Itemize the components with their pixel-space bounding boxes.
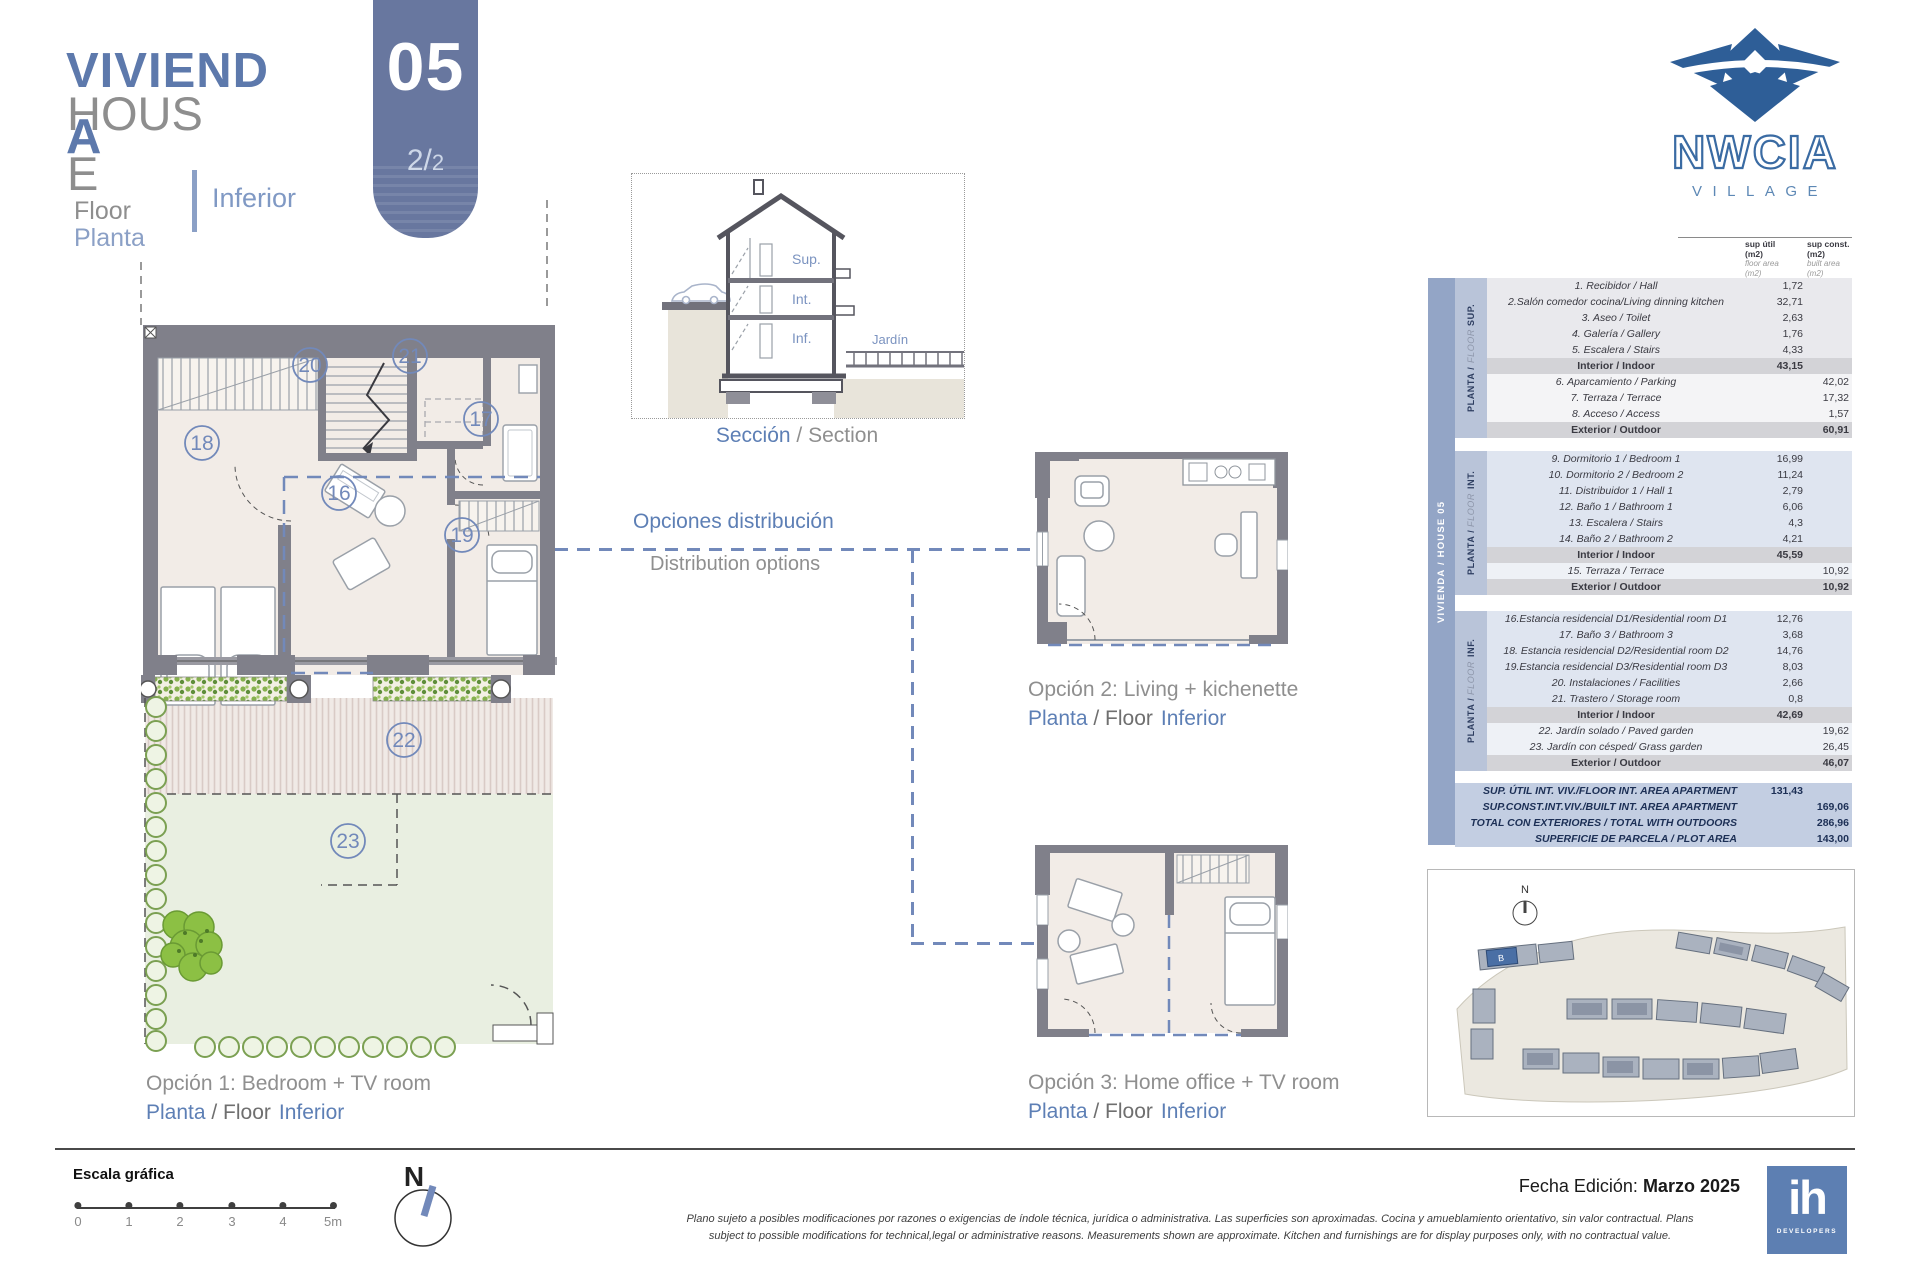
row-floor-area: 45,59 (1745, 547, 1807, 563)
row-label: 16.Estancia residencial D1/Residential r… (1487, 611, 1745, 627)
row-floor-area: 32,71 (1745, 294, 1807, 310)
row-built-area (1807, 691, 1852, 707)
disclaimer: Plano sujeto a posibles modificaciones p… (620, 1211, 1760, 1245)
option2-floor-plan (1035, 452, 1288, 650)
table-row: 16.Estancia residencial D1/Residential r… (1487, 611, 1852, 627)
table-row: Exterior / Outdoor60,91 (1487, 422, 1852, 438)
car-icon (672, 284, 730, 304)
summary-built-area (1807, 783, 1852, 799)
summary-row: SUP. ÚTIL INT. VIV./FLOOR INT. AREA APAR… (1455, 783, 1852, 799)
row-built-area: 19,62 (1807, 723, 1852, 739)
planter-left (155, 677, 287, 701)
table-row: Interior / Indoor42,69 (1487, 707, 1852, 723)
site-plan: N B (1427, 869, 1855, 1117)
table-section-floor-sup: PLANTA / FLOOR SUP. 1. Recibidor / Hall1… (1455, 278, 1852, 438)
connector-line (911, 550, 914, 944)
row-floor-area (1745, 390, 1807, 406)
garden-railing-icon (846, 352, 964, 366)
edition-date: Fecha Edición: Marzo 2025 (1440, 1176, 1740, 1197)
summary-built-area: 169,06 (1807, 799, 1852, 815)
floor-label-en: Floor (74, 197, 131, 226)
table-row: 14. Baño 2 / Bathroom 24,21 (1487, 531, 1852, 547)
section-caption: Sección / Section (631, 424, 963, 448)
row-floor-area (1745, 563, 1807, 579)
summary-floor-area (1745, 831, 1807, 847)
scale-bar: 012345m (77, 1198, 335, 1240)
row-floor-area: 4,21 (1745, 531, 1807, 547)
row-floor-area: 4,3 (1745, 515, 1807, 531)
row-floor-area (1745, 374, 1807, 390)
table-row: 11. Distribuidor 1 / Hall 12,79 (1487, 483, 1852, 499)
connector-line (555, 548, 1037, 551)
option3-title: Opción 3: Home office + TV room (1028, 1071, 1339, 1095)
chair (1215, 534, 1237, 556)
row-label: 19.Estancia residencial D3/Residential r… (1487, 659, 1745, 675)
floor-value: Inferior (212, 183, 296, 214)
brand-emblem-icon (1670, 28, 1840, 122)
row-label: 14. Baño 2 / Bathroom 2 (1487, 531, 1745, 547)
col-header-built-area: sup const.(m2) built area(m2) (1807, 240, 1852, 278)
room-label-20: 20 (298, 354, 321, 377)
row-floor-area (1745, 579, 1807, 595)
table-row: 13. Escalera / Stairs4,3 (1487, 515, 1852, 531)
row-label: 7. Terraza / Terrace (1487, 390, 1745, 406)
connector-line (911, 942, 1037, 945)
row-label: 18. Estancia residencial D2/Residential … (1487, 643, 1745, 659)
table-row: 12. Baño 1 / Bathroom 16,06 (1487, 499, 1852, 515)
summary-row: SUP.CONST.INT.VIV./BUILT INT. AREA APART… (1455, 799, 1852, 815)
row-label: 20. Instalaciones / Facilities (1487, 675, 1745, 691)
table-row: Interior / Indoor43,15 (1487, 358, 1852, 374)
brand-tagline: VILLAGE (1692, 183, 1828, 200)
floor-inf-band: PLANTA / FLOOR INF. (1455, 611, 1487, 771)
table-row: 21. Trastero / Storage room0,8 (1487, 691, 1852, 707)
house-section-icon (718, 180, 854, 376)
table-row: 8. Acceso / Access1,57 (1487, 406, 1852, 422)
option3-floor-plan (1035, 845, 1288, 1043)
table-row: Interior / Indoor45,59 (1487, 547, 1852, 563)
row-floor-area: 4,33 (1745, 342, 1807, 358)
table-summary: SUP. ÚTIL INT. VIV./FLOOR INT. AREA APAR… (1455, 783, 1852, 847)
developer-logo: ih DEVELOPERS (1767, 1166, 1847, 1254)
north-label: N (404, 1161, 424, 1192)
row-label: 3. Aseo / Toilet (1487, 310, 1745, 326)
option1-title: Opción 1: Bedroom + TV room (146, 1072, 431, 1096)
site-north-label: N (1521, 884, 1529, 896)
row-built-area (1807, 451, 1852, 467)
row-built-area: 10,92 (1807, 563, 1852, 579)
unit-badge: 05 2/2 (373, 0, 478, 238)
row-built-area (1807, 531, 1852, 547)
table-row: 6. Aparcamiento / Parking42,02 (1487, 374, 1852, 390)
level-int-label: Int. (792, 291, 811, 307)
col-header-floor-area: sup útil(m2) floor area(m2) (1745, 240, 1807, 278)
row-floor-area (1745, 739, 1807, 755)
paved-garden (145, 698, 553, 794)
option2-title: Opción 2: Living + kichenette (1028, 678, 1298, 702)
row-built-area (1807, 675, 1852, 691)
sink-17 (519, 365, 537, 393)
scale-title: Escala gráfica (73, 1166, 174, 1183)
table-row: 10. Dormitorio 2 / Bedroom 211,24 (1487, 467, 1852, 483)
room-label-22: 22 (392, 729, 415, 752)
row-built-area (1807, 310, 1852, 326)
table-row: Exterior / Outdoor46,07 (1487, 755, 1852, 771)
area-table: sup útil(m2) floor area(m2) sup const.(m… (1428, 237, 1852, 849)
row-label: Exterior / Outdoor (1487, 579, 1745, 595)
row-label: 1. Recibidor / Hall (1487, 278, 1745, 294)
row-built-area: 60,91 (1807, 422, 1852, 438)
plan-sheet: VIVIENDA HOUSE Floor Planta Inferior 05 … (0, 0, 1920, 1280)
table-row: 15. Terraza / Terrace10,92 (1487, 563, 1852, 579)
option1-caption: Opción 1: Bedroom + TV room Planta / Flo… (146, 1072, 431, 1125)
unit-number: 05 (373, 28, 478, 106)
table-row: 3. Aseo / Toilet2,63 (1487, 310, 1852, 326)
scale-tick: 3 (228, 1202, 235, 1229)
row-label: 2.Salón comedor cocina/Living dinning ki… (1487, 294, 1745, 310)
room-label-16: 16 (327, 482, 350, 505)
summary-label: SUP.CONST.INT.VIV./BUILT INT. AREA APART… (1455, 799, 1745, 815)
row-built-area (1807, 294, 1852, 310)
room-label-23: 23 (336, 830, 359, 853)
row-built-area: 26,45 (1807, 739, 1852, 755)
highlighted-building-label: B (1498, 953, 1505, 964)
row-built-area (1807, 659, 1852, 675)
table-16 (375, 496, 405, 526)
row-label: 22. Jardín solado / Paved garden (1487, 723, 1745, 739)
table-row: 9. Dormitorio 1 / Bedroom 116,99 (1487, 451, 1852, 467)
option3-caption: Opción 3: Home office + TV room Planta /… (1028, 1071, 1339, 1124)
row-floor-area: 1,76 (1745, 326, 1807, 342)
footer-rule (55, 1148, 1855, 1150)
chair-1 (1112, 914, 1134, 936)
property-line (140, 262, 142, 325)
row-label: 5. Escalera / Stairs (1487, 342, 1745, 358)
table-row: 22. Jardín solado / Paved garden19,62 (1487, 723, 1852, 739)
scale-tick: 2 (176, 1202, 183, 1229)
row-floor-area: 14,76 (1745, 643, 1807, 659)
level-sup-label: Sup. (792, 251, 821, 267)
table-row: 19.Estancia residencial D3/Residential r… (1487, 659, 1852, 675)
row-built-area (1807, 627, 1852, 643)
row-label: 11. Distribuidor 1 / Hall 1 (1487, 483, 1745, 499)
row-floor-area: 8,03 (1745, 659, 1807, 675)
row-floor-area: 6,06 (1745, 499, 1807, 515)
row-label: 23. Jardín con césped/ Grass garden (1487, 739, 1745, 755)
row-built-area (1807, 499, 1852, 515)
developer-logo-sub: DEVELOPERS (1767, 1228, 1847, 1235)
summary-floor-area (1745, 815, 1807, 831)
scale-tick: 4 (279, 1202, 286, 1229)
table-section-floor-inf: PLANTA / FLOOR INF. 16.Estancia residenc… (1455, 611, 1852, 771)
floor-sup-band: PLANTA / FLOOR SUP. (1455, 278, 1487, 438)
sofa (1057, 556, 1085, 616)
row-label: 15. Terraza / Terrace (1487, 563, 1745, 579)
table-row: 17. Baño 3 / Bathroom 33,68 (1487, 627, 1852, 643)
row-built-area (1807, 611, 1852, 627)
room-label-21: 21 (398, 345, 421, 368)
row-built-area (1807, 278, 1852, 294)
room-label-18: 18 (190, 432, 213, 455)
garden-label: Jardín (872, 332, 908, 347)
row-floor-area: 3,68 (1745, 627, 1807, 643)
room-label-19: 19 (450, 524, 473, 547)
row-label: 4. Galería / Gallery (1487, 326, 1745, 342)
page-indicator: 2/2 (373, 144, 478, 178)
table-row: 23. Jardín con césped/ Grass garden26,45 (1487, 739, 1852, 755)
row-label: Exterior / Outdoor (1487, 755, 1745, 771)
row-floor-area: 42,69 (1745, 707, 1807, 723)
main-floor-plan: 20 21 17 18 16 19 22 23 (141, 325, 557, 1062)
table-row: 20. Instalaciones / Facilities2,66 (1487, 675, 1852, 691)
summary-label: TOTAL CON EXTERIORES / TOTAL WITH OUTDOO… (1455, 815, 1745, 831)
scale-tick: 5m (324, 1202, 342, 1229)
row-label: 13. Escalera / Stairs (1487, 515, 1745, 531)
row-built-area (1807, 547, 1852, 563)
brand-name: NWCIA (1672, 126, 1838, 178)
distribution-label-es: Opciones distribución (633, 510, 834, 534)
table-row: 2.Salón comedor cocina/Living dinning ki… (1487, 294, 1852, 310)
row-label: 21. Trastero / Storage room (1487, 691, 1745, 707)
row-label: Interior / Indoor (1487, 547, 1745, 563)
row-floor-area: 16,99 (1745, 451, 1807, 467)
row-label: 17. Baño 3 / Bathroom 3 (1487, 627, 1745, 643)
row-built-area (1807, 483, 1852, 499)
summary-built-area: 143,00 (1807, 831, 1852, 847)
cut-line (546, 200, 548, 312)
row-label: 9. Dormitorio 1 / Bedroom 1 (1487, 451, 1745, 467)
floor-label-es: Planta (74, 224, 145, 253)
room-label-17: 17 (469, 408, 492, 431)
summary-floor-area: 131,43 (1745, 783, 1807, 799)
table-row: 5. Escalera / Stairs4,33 (1487, 342, 1852, 358)
row-floor-area: 2,66 (1745, 675, 1807, 691)
row-built-area (1807, 707, 1852, 723)
row-label: 8. Acceso / Access (1487, 406, 1745, 422)
distribution-label-en: Distribution options (650, 553, 820, 576)
row-label: Exterior / Outdoor (1487, 422, 1745, 438)
row-built-area: 46,07 (1807, 755, 1852, 771)
table-row: 7. Terraza / Terrace17,32 (1487, 390, 1852, 406)
row-label: 6. Aparcamiento / Parking (1487, 374, 1745, 390)
planter-right (373, 677, 491, 701)
desk (1241, 512, 1257, 578)
summary-row: TOTAL CON EXTERIORES / TOTAL WITH OUTDOO… (1455, 815, 1852, 831)
armchair (1075, 476, 1109, 506)
row-label: Interior / Indoor (1487, 707, 1745, 723)
header-divider (192, 170, 197, 232)
table-row: Exterior / Outdoor10,92 (1487, 579, 1852, 595)
table-section-floor-int: PLANTA / FLOOR INT. 9. Dormitorio 1 / Be… (1455, 451, 1852, 595)
row-label: 12. Baño 1 / Bathroom 1 (1487, 499, 1745, 515)
row-built-area (1807, 358, 1852, 374)
row-floor-area (1745, 755, 1807, 771)
row-built-area (1807, 643, 1852, 659)
row-built-area: 1,57 (1807, 406, 1852, 422)
scale-tick: 0 (74, 1202, 81, 1229)
row-floor-area (1745, 406, 1807, 422)
table-header-rule (1678, 237, 1852, 238)
table-row: 4. Galería / Gallery1,76 (1487, 326, 1852, 342)
row-built-area (1807, 515, 1852, 531)
row-built-area: 10,92 (1807, 579, 1852, 595)
row-label: Interior / Indoor (1487, 358, 1745, 374)
row-floor-area (1745, 422, 1807, 438)
level-inf-label: Inf. (792, 330, 811, 346)
developer-logo-text: ih (1767, 1170, 1847, 1225)
north-compass: N (390, 1156, 460, 1252)
table-row: 1. Recibidor / Hall1,72 (1487, 278, 1852, 294)
row-built-area (1807, 326, 1852, 342)
row-built-area (1807, 342, 1852, 358)
row-floor-area: 0,8 (1745, 691, 1807, 707)
row-floor-area: 2,79 (1745, 483, 1807, 499)
option2-caption: Opción 2: Living + kichenette Planta / F… (1028, 678, 1298, 731)
row-built-area: 17,32 (1807, 390, 1852, 406)
summary-label: SUPERFICIE DE PARCELA / PLOT AREA (1455, 831, 1745, 847)
row-built-area: 42,02 (1807, 374, 1852, 390)
row-built-area (1807, 467, 1852, 483)
summary-row: SUPERFICIE DE PARCELA / PLOT AREA143,00 (1455, 831, 1852, 847)
table-row: 18. Estancia residencial D2/Residential … (1487, 643, 1852, 659)
house-band: VIVIENDA / HOUSE 05 (1428, 278, 1455, 845)
row-floor-area: 11,24 (1745, 467, 1807, 483)
chair-2 (1058, 930, 1080, 952)
brand-logo: NWCIA VILLAGE (1652, 22, 1858, 214)
floor-int-band: PLANTA / FLOOR INT. (1455, 451, 1487, 595)
row-floor-area: 43,15 (1745, 358, 1807, 374)
summary-label: SUP. ÚTIL INT. VIV./FLOOR INT. AREA APAR… (1455, 783, 1745, 799)
section-drawing-frame: Sup. Int. Inf. Jardín (631, 173, 965, 419)
row-floor-area (1745, 723, 1807, 739)
row-label: 10. Dormitorio 2 / Bedroom 2 (1487, 467, 1745, 483)
section-drawing: Sup. Int. Inf. Jardín (632, 174, 964, 418)
row-floor-area: 2,63 (1745, 310, 1807, 326)
round-table (1084, 521, 1114, 551)
scale-tick: 1 (125, 1202, 132, 1229)
disclaimer-line2: subject to possible modifications for te… (620, 1228, 1760, 1245)
summary-built-area: 286,96 (1807, 815, 1852, 831)
row-floor-area: 1,72 (1745, 278, 1807, 294)
disclaimer-line1: Plano sujeto a posibles modificaciones p… (620, 1211, 1760, 1228)
scale-line (77, 1207, 335, 1209)
summary-floor-area (1745, 799, 1807, 815)
row-floor-area: 12,76 (1745, 611, 1807, 627)
